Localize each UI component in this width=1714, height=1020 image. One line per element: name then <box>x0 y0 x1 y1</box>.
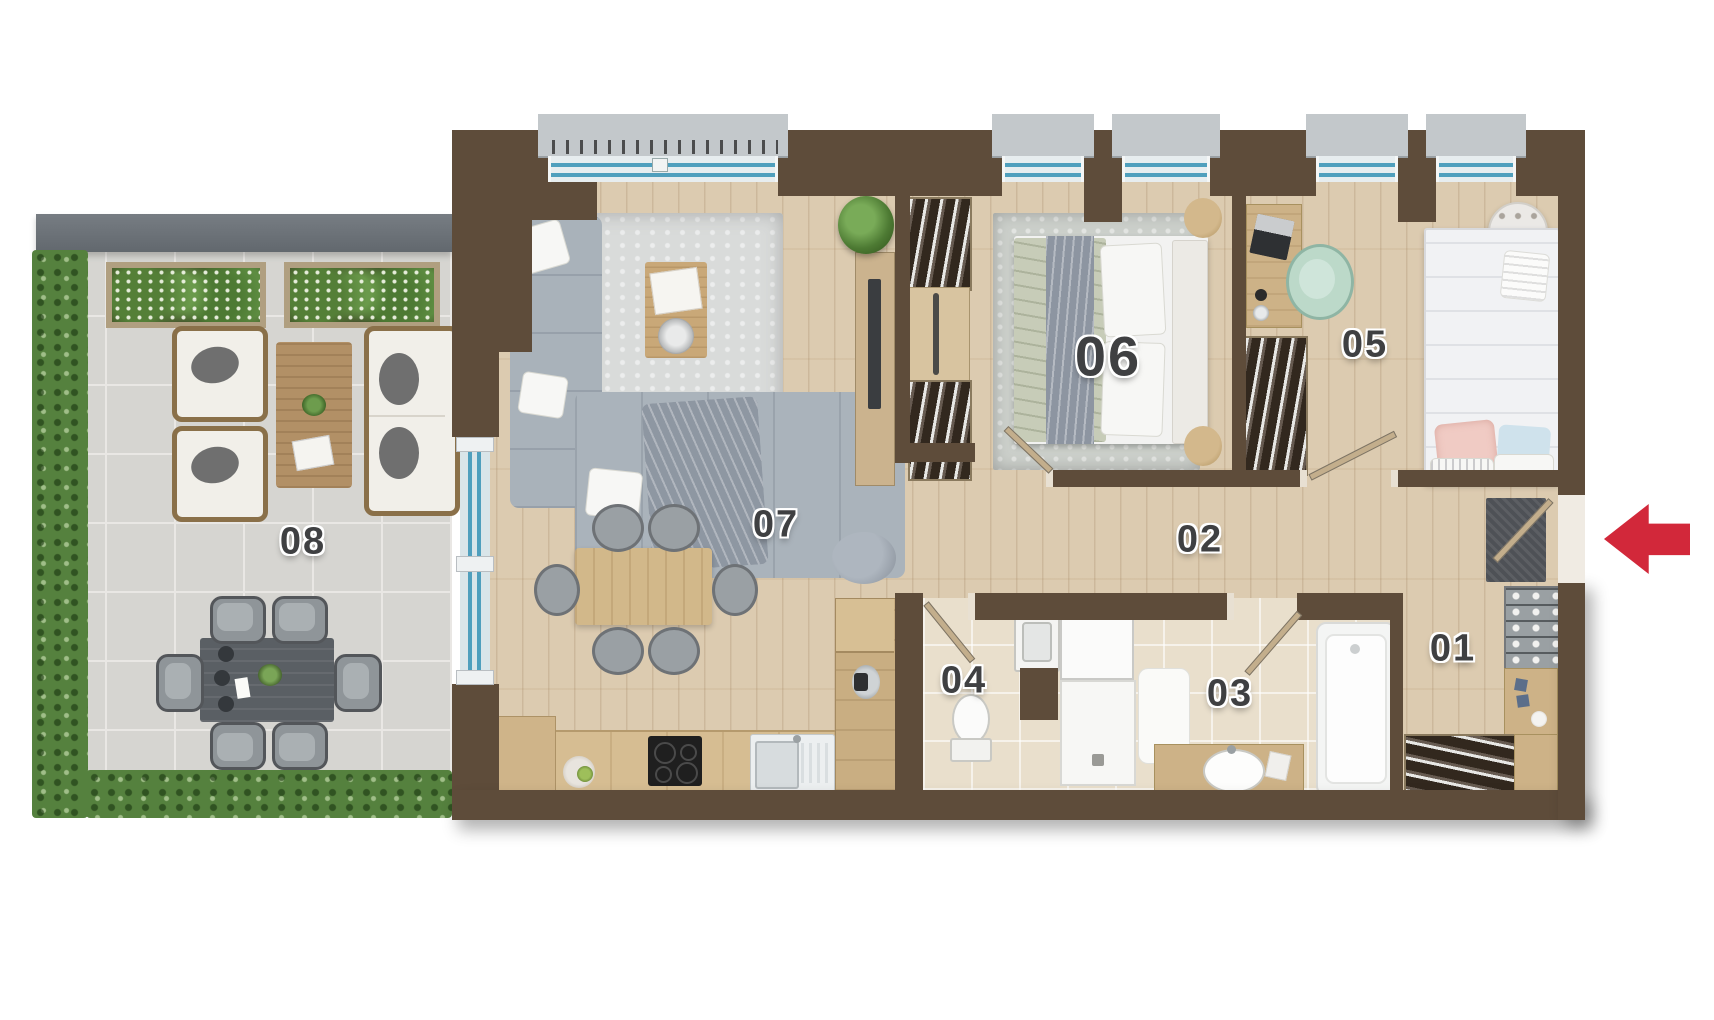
table-plant <box>258 664 282 686</box>
bath-faucet <box>1350 644 1360 654</box>
wall-right <box>1558 583 1585 820</box>
terrace-coffee-table <box>276 342 352 488</box>
outdoor-armchair <box>172 326 268 422</box>
headboard <box>1172 240 1208 444</box>
dining-chair <box>648 504 700 552</box>
burner <box>680 744 697 761</box>
room-label-05: 05 <box>1342 324 1388 367</box>
wall-wc-west <box>895 593 923 790</box>
dining-chair <box>534 564 580 616</box>
window-handle <box>652 158 668 172</box>
armchair-pillow <box>188 442 242 487</box>
clothes-rail <box>933 293 939 375</box>
sofa-pillow <box>379 353 419 405</box>
wall-living-bedroom <box>895 178 910 463</box>
chair-seat <box>1299 259 1335 299</box>
glass-door-frame <box>456 437 494 452</box>
door-jamb <box>1227 593 1234 620</box>
plant <box>838 196 894 254</box>
room-label-07: 07 <box>753 504 799 547</box>
wardrobe-clothes <box>908 197 972 291</box>
dining-chair <box>712 564 758 616</box>
round-tray <box>658 318 694 354</box>
coat-wardrobe-clothes <box>1404 734 1516 794</box>
wall-right <box>1558 130 1585 495</box>
wall-block-topleft <box>452 178 532 352</box>
room-label-03: 03 <box>1207 673 1253 716</box>
armchair-pillow <box>188 342 242 387</box>
plate <box>218 646 234 662</box>
vase <box>1531 711 1547 727</box>
entry-cabinet <box>1504 668 1558 736</box>
faucet <box>1227 745 1236 754</box>
outdoor-dining-table <box>200 638 334 722</box>
dining-chair <box>648 627 700 675</box>
wardrobe-middle <box>908 287 970 382</box>
grapes <box>577 766 593 782</box>
burner <box>676 762 698 784</box>
wall-bedroom-divider <box>1232 178 1246 487</box>
outdoor-chair <box>334 654 382 712</box>
wall-bottom <box>452 790 1585 820</box>
outdoor-chair <box>272 596 328 644</box>
wall-below-bedrooms <box>1052 470 1307 487</box>
window-sill <box>1112 114 1220 158</box>
wall-top <box>1210 130 1316 196</box>
window-glass <box>1436 156 1516 182</box>
desk-lamp <box>1255 289 1267 301</box>
upper-cabinet <box>836 599 894 653</box>
round-nightstand <box>1184 426 1222 466</box>
sofa-pillow <box>379 427 419 479</box>
wall-bath-east <box>1390 593 1403 790</box>
outdoor-sofa <box>364 326 460 516</box>
window-sill <box>1426 114 1526 158</box>
napkin <box>235 677 251 699</box>
chair-cushion <box>217 603 253 631</box>
room-label-01: 01 <box>1430 628 1476 671</box>
magazine <box>292 435 335 471</box>
kitchen-counter-end <box>498 716 556 792</box>
room-label-02: 02 <box>1177 519 1223 562</box>
room-label-06: 06 <box>1075 324 1141 389</box>
wall-top <box>778 130 1002 196</box>
door-jamb <box>1300 470 1307 487</box>
burner <box>654 742 676 764</box>
sink-basin <box>755 741 799 789</box>
shower-drain <box>1092 754 1104 766</box>
window-glass <box>1002 156 1084 182</box>
tv-sideboard <box>855 252 895 486</box>
faucet <box>793 735 801 743</box>
small-box <box>1516 694 1530 708</box>
burner <box>655 766 672 783</box>
bathtub <box>1316 622 1396 796</box>
vanity-sink <box>1203 749 1265 793</box>
chair-cushion <box>343 663 369 699</box>
planter-box <box>106 262 266 328</box>
wall-west <box>452 352 499 437</box>
round-nightstand <box>1184 198 1222 238</box>
floor-plan: 01 02 03 04 05 06 07 08 <box>0 0 1714 1020</box>
desk-clock <box>1253 305 1269 321</box>
window-sill <box>992 114 1094 158</box>
glass-door-frame <box>456 556 494 572</box>
blind-box-ticks <box>552 140 778 154</box>
outdoor-armchair <box>172 426 268 522</box>
room-label-08: 08 <box>280 521 326 564</box>
dining-table <box>575 548 712 625</box>
window-glass <box>1316 156 1398 182</box>
wardrobe-clothes <box>1244 336 1308 476</box>
sink-drainboard <box>801 743 831 783</box>
wall-top <box>452 130 550 178</box>
outdoor-chair <box>272 722 328 770</box>
soap-items <box>1265 751 1292 781</box>
coffee-table <box>645 262 707 358</box>
magazine <box>649 267 702 315</box>
sofa-pillow <box>517 371 569 420</box>
toilet <box>950 694 988 760</box>
kitchen-sink <box>750 734 835 792</box>
coffee-machine <box>852 665 880 699</box>
tall-kitchen-unit <box>835 598 897 792</box>
small-box <box>1514 678 1528 692</box>
bathrobe <box>1500 250 1551 303</box>
door-jamb <box>1391 470 1398 487</box>
cooktop <box>648 736 702 786</box>
wall-wc-bath-divider <box>1020 668 1058 720</box>
hedge-bottom <box>86 770 452 818</box>
chair-cushion <box>279 733 315 761</box>
bathtub-basin <box>1325 634 1387 784</box>
wall-hall-south <box>975 593 1227 620</box>
outdoor-chair <box>156 654 204 712</box>
basin-bowl <box>1022 622 1052 662</box>
plate <box>218 696 234 712</box>
wall-west <box>452 684 499 790</box>
dining-chair <box>592 627 644 675</box>
fruit-bowl <box>563 756 595 788</box>
plate <box>214 670 230 686</box>
hedge-left <box>32 250 88 818</box>
toilet-tank <box>950 738 992 762</box>
coffee-machine-body <box>854 673 868 691</box>
window-sill <box>1306 114 1408 158</box>
terrace-parapet-wall <box>36 214 452 252</box>
glass-door-frame <box>456 670 494 685</box>
table-plant <box>302 394 326 416</box>
shower-tray <box>1060 680 1136 786</box>
wall-hall-south <box>1297 593 1403 620</box>
planter-box <box>284 262 440 328</box>
room-label-04: 04 <box>941 660 987 703</box>
single-bed <box>1424 228 1560 484</box>
chair-cushion <box>165 663 191 699</box>
sofa-seam <box>369 415 445 417</box>
entrance-arrow-icon <box>1604 504 1690 574</box>
wall-below-bedroom06 <box>895 443 975 462</box>
entrance-threshold <box>1558 495 1585 583</box>
wall-below-bedroom05 <box>1398 470 1558 487</box>
window-glass <box>1122 156 1210 182</box>
chair-cushion <box>217 733 253 761</box>
outdoor-chair <box>210 596 266 644</box>
chair-cushion <box>279 603 315 631</box>
tv-screen <box>868 279 881 409</box>
vanity-counter <box>1154 744 1304 792</box>
door-jamb <box>968 593 975 620</box>
wardrobe-clothes <box>908 380 972 481</box>
coat-wardrobe-side <box>1514 734 1558 792</box>
office-chair <box>1286 244 1354 320</box>
dining-chair <box>592 504 644 552</box>
laptop <box>1249 213 1294 260</box>
floor-pouf <box>832 532 896 584</box>
outdoor-chair <box>210 722 266 770</box>
